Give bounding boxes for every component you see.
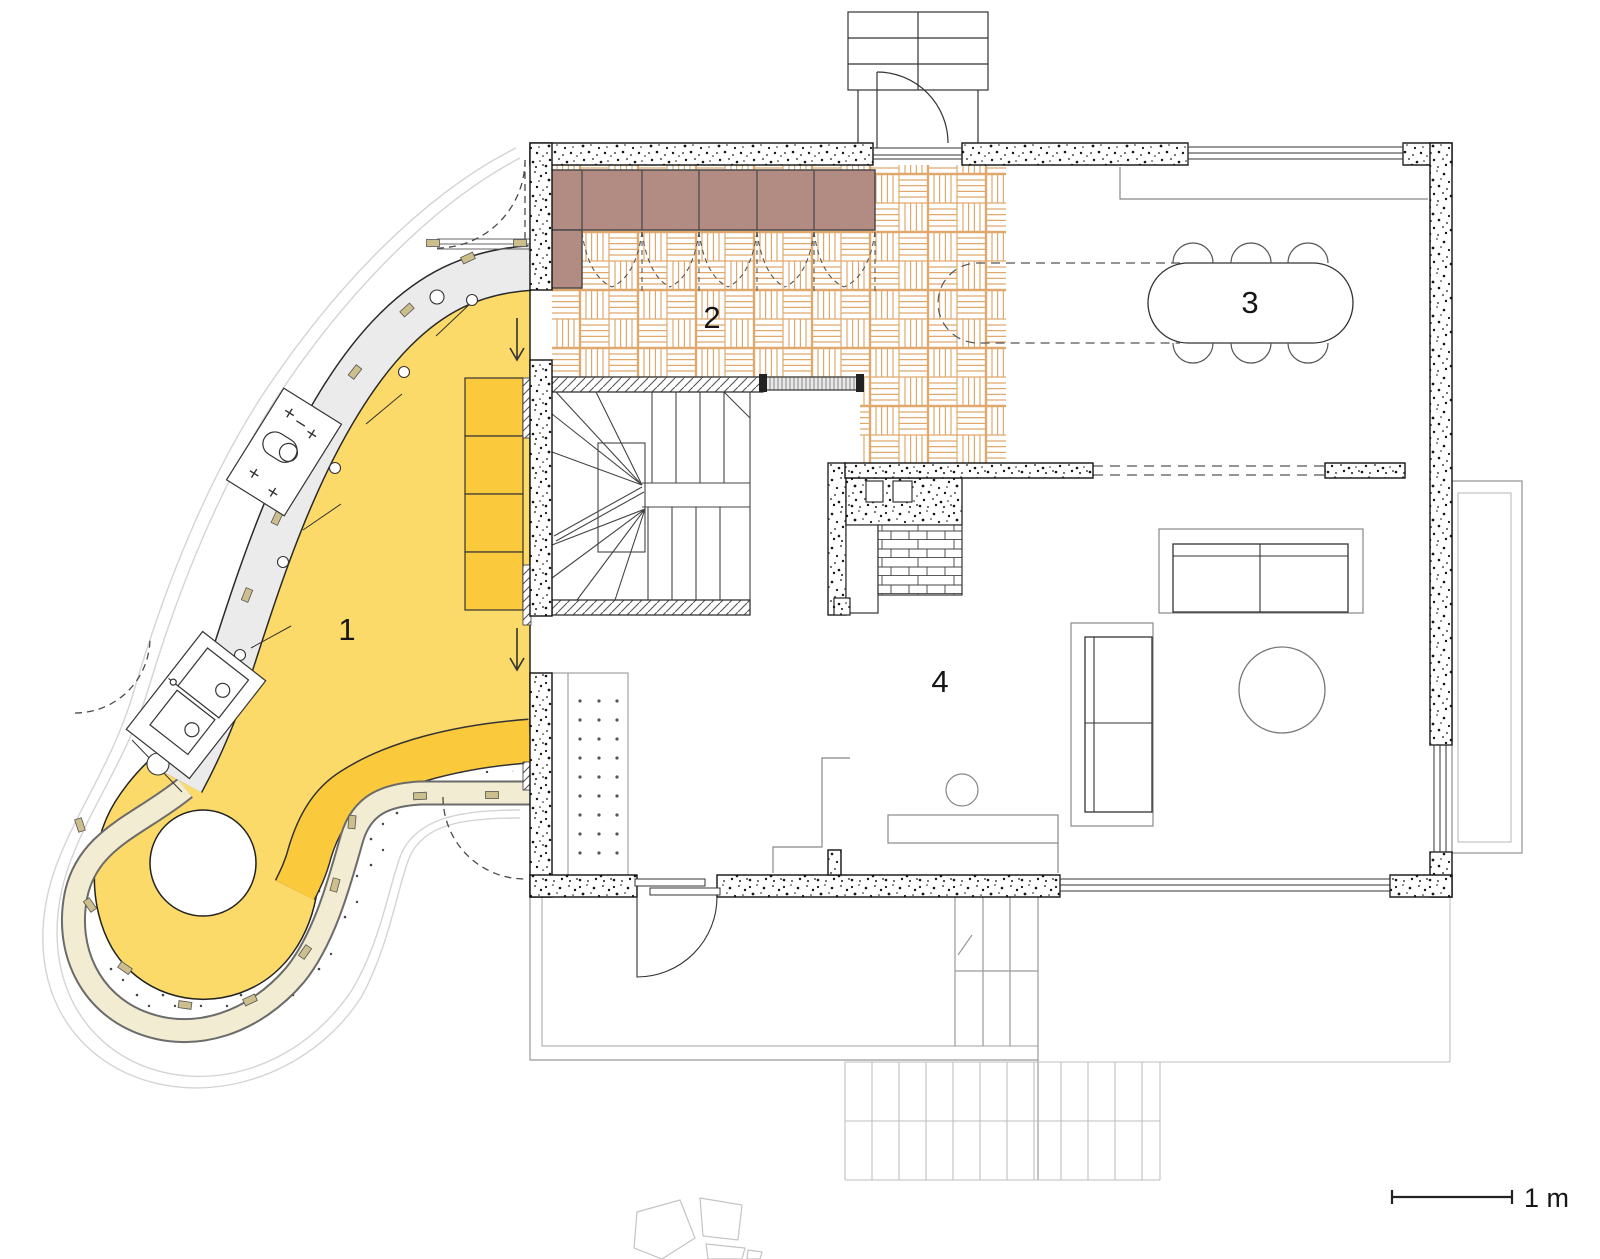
fireplace bbox=[828, 463, 962, 615]
area4-label: 4 bbox=[931, 664, 948, 699]
scale-label: 1 m bbox=[1524, 1183, 1569, 1213]
entrance-porch bbox=[848, 12, 988, 159]
staircase bbox=[552, 392, 750, 600]
floor-plan-drawing: 1 bbox=[0, 0, 1600, 1259]
stepping-stones bbox=[634, 1198, 762, 1259]
area3-label: 3 bbox=[1241, 285, 1258, 320]
sofa-left bbox=[1071, 623, 1153, 826]
area1-label: 1 bbox=[338, 612, 355, 647]
round-terrace-opening bbox=[150, 810, 256, 916]
window-north bbox=[1188, 143, 1403, 165]
room-divider-dashed bbox=[1093, 466, 1325, 475]
scale-bar: 1 m bbox=[1392, 1183, 1569, 1213]
stair-railing bbox=[759, 374, 864, 392]
floor-plan-page: 1 bbox=[0, 0, 1600, 1259]
stair-walls bbox=[552, 377, 763, 615]
window-south bbox=[1060, 875, 1390, 897]
garden-steps bbox=[845, 853, 1450, 1180]
window-east bbox=[1430, 745, 1452, 852]
sofa-top bbox=[1159, 529, 1363, 613]
window-sill-north bbox=[1120, 167, 1428, 199]
south-sliding-door bbox=[635, 879, 720, 895]
site-terrace-lines bbox=[530, 897, 1038, 1180]
dining-area: 3 bbox=[938, 167, 1428, 363]
area2-label: 2 bbox=[703, 300, 720, 335]
east-balcony bbox=[1452, 481, 1522, 853]
desk-and-chair bbox=[888, 774, 1058, 873]
coffee-table bbox=[1239, 647, 1325, 733]
south-door-swing bbox=[637, 897, 717, 977]
storage-strip bbox=[552, 673, 628, 875]
tall-cabinets bbox=[465, 378, 523, 610]
extension-area-1: 1 bbox=[43, 148, 532, 1088]
